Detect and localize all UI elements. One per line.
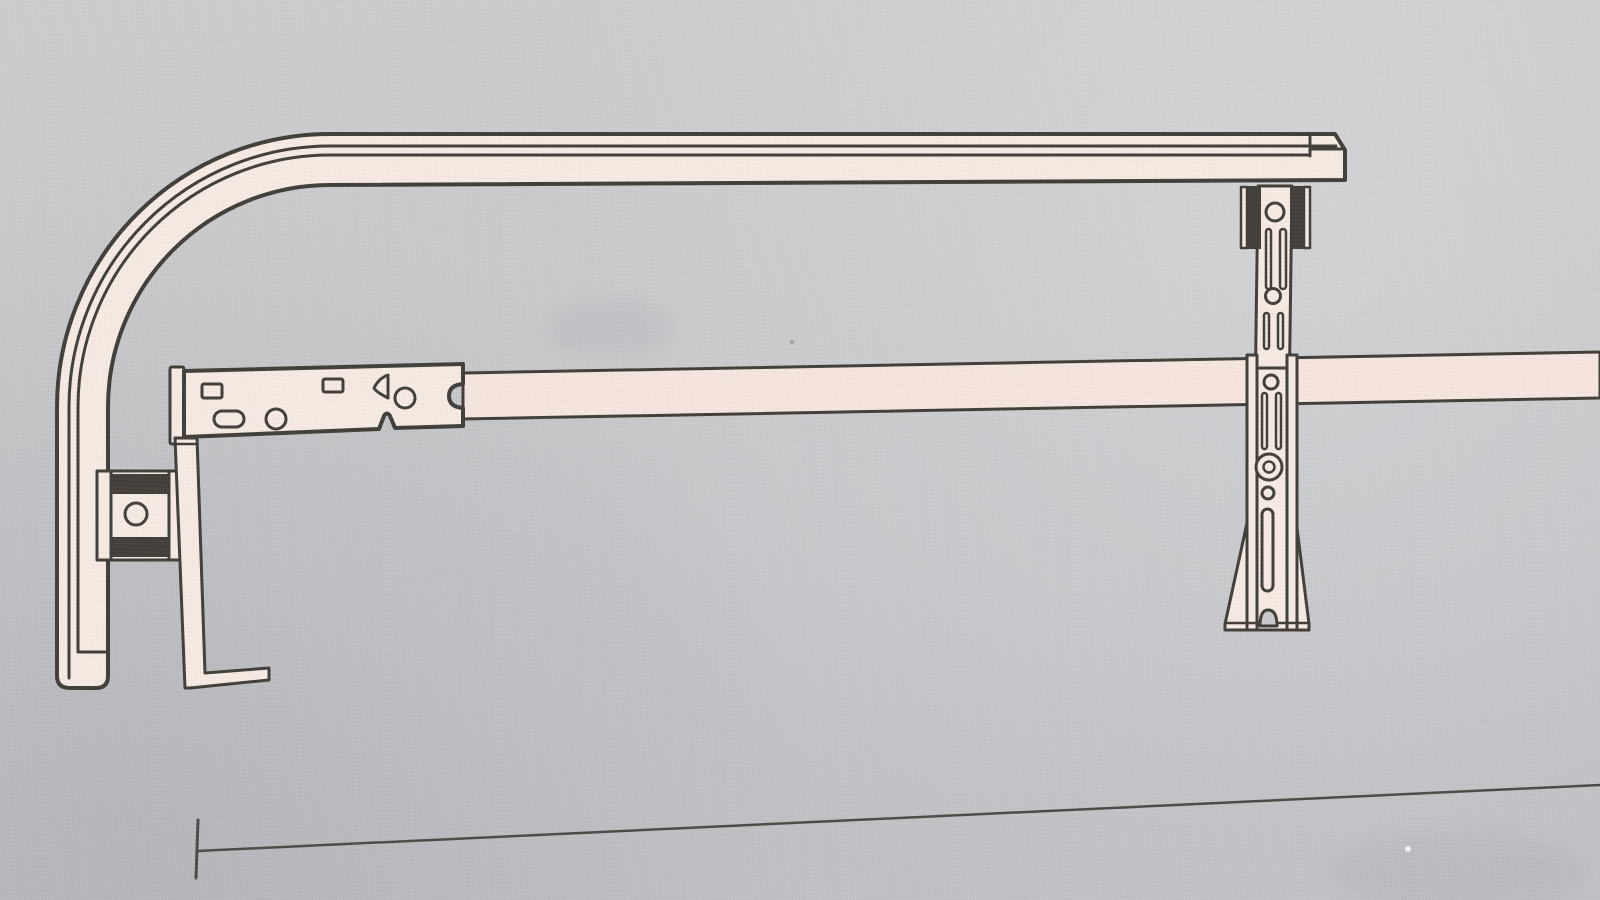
clamp-jaw-top bbox=[111, 475, 169, 493]
photo-of-diagram bbox=[0, 0, 1600, 900]
rail-clamp-pad-edge-right bbox=[1304, 187, 1310, 248]
plate-left-strip bbox=[170, 367, 184, 444]
washer-bolt-outer bbox=[1256, 454, 1282, 480]
clamp-block bbox=[97, 471, 183, 560]
paper-speck bbox=[790, 340, 795, 345]
clamp-jaw-bottom bbox=[111, 538, 169, 556]
dimension-tick bbox=[196, 820, 198, 878]
rail-clamp-pad-left bbox=[1247, 187, 1260, 248]
sleeve-arch-notch bbox=[1260, 610, 1277, 626]
paper-smudge bbox=[547, 297, 677, 357]
diagram-canvas bbox=[0, 0, 1600, 900]
rail-clamp-pad-right bbox=[1291, 187, 1304, 248]
paper-speck-white bbox=[1405, 846, 1411, 852]
clamp-bolt-hole bbox=[125, 503, 147, 525]
